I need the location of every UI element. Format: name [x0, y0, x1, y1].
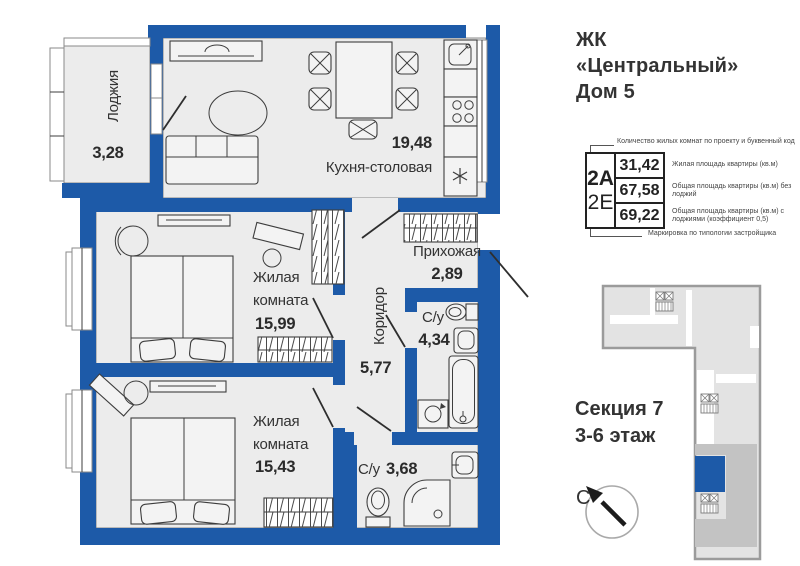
shower-tray: [404, 480, 450, 526]
hallway-area: 2,89: [431, 265, 462, 283]
total-area-label: Общая площадь квартиры (кв.м) без лоджий: [672, 178, 798, 204]
compass: С: [556, 472, 651, 556]
loggia-area: 3,28: [92, 144, 123, 162]
corridor-area: 5,77: [360, 359, 391, 377]
bedroom2-name-2: комната: [253, 436, 309, 453]
apartment-code-primary: 2А: [587, 167, 614, 191]
project-title: ЖК «Центральный» Дом 5: [576, 27, 739, 105]
north-arrow: [602, 502, 625, 525]
apartment-areas: 31,42 67,58 69,22: [614, 152, 665, 229]
apartment-floorplan: Лоджия 3,28 19,48 Кухня-столовая Жилая к…: [0, 0, 540, 566]
kitchen-name: Кухня-столовая: [326, 159, 432, 176]
hallway-name: Прихожая: [413, 243, 481, 260]
spec-labels: Жилая площадь квартиры (кв.м) Общая площ…: [672, 152, 798, 229]
legend-bottom-connector: [590, 229, 642, 237]
corridor-name: Коридор: [371, 287, 388, 345]
total-area-with-loggia-label: Общая площадь квартиры (кв.м) с лоджиями…: [672, 203, 798, 229]
washing-machine: [418, 400, 448, 428]
wardrobe: [312, 210, 344, 284]
project-title-line2: «Центральный»: [576, 53, 739, 79]
total-area-value: 67,58: [614, 177, 665, 204]
sofa: [166, 136, 258, 184]
north-label: С: [576, 487, 590, 509]
apartment-code-secondary: 2Е: [588, 191, 614, 215]
hallway-wardrobe: [404, 214, 477, 242]
living-area-value: 31,42: [614, 152, 665, 179]
bathroom1-area: 4,34: [418, 331, 450, 349]
bathroom2-area: 3,68: [386, 460, 417, 478]
loggia-name: Лоджия: [105, 70, 122, 122]
kitchen-units: [444, 40, 477, 196]
bathtub: [449, 356, 478, 428]
counter: [444, 69, 477, 97]
bathroom2-name: С/у: [358, 461, 381, 478]
legend-top-note: Количество жилых комнат по проекту и бук…: [617, 138, 795, 145]
floor-range: 3-6 этаж: [575, 423, 664, 450]
toilet: [367, 488, 389, 516]
tv-console: [170, 41, 262, 61]
toilet-base: [366, 517, 390, 527]
double-bed: [131, 418, 235, 525]
bedroom1-name-2: комната: [253, 292, 309, 309]
project-title-line1: ЖК: [576, 27, 739, 53]
bathroom1-name: С/у: [422, 309, 445, 326]
wardrobe: [258, 337, 332, 362]
double-bed: [131, 256, 233, 362]
bedroom1-window-sill: [66, 252, 72, 326]
legend-bottom-note: Маркировка по типологии застройщика: [648, 230, 776, 237]
toilet-tank: [466, 304, 478, 320]
balcony-window-frame: [151, 98, 162, 134]
minimap-highlighted-apartment: [695, 456, 725, 492]
floorplan-page: Лоджия 3,28 19,48 Кухня-столовая Жилая к…: [0, 0, 800, 566]
kitchen-area: 19,48: [392, 134, 432, 152]
bedroom2-window-sill: [66, 394, 72, 468]
apartment-codes: 2А 2Е: [585, 152, 616, 229]
loggia-glazing: [50, 48, 64, 181]
living-area-label: Жилая площадь квартиры (кв.м): [672, 152, 798, 178]
balcony-door-frame: [151, 64, 162, 98]
loggia-top-window: [64, 38, 150, 46]
stove: [444, 97, 477, 126]
section-number: Секция 7: [575, 396, 664, 423]
bedroom2-area: 15,43: [255, 458, 295, 476]
project-title-line3: Дом 5: [576, 79, 739, 105]
wardrobe: [264, 498, 333, 527]
dining-table: [336, 42, 392, 118]
section-info: Секция 7 3-6 этаж: [575, 396, 664, 450]
apartment-spec-table: 2А 2Е 31,42 67,58 69,22: [585, 152, 665, 229]
total-area-with-loggia-value: 69,22: [614, 202, 665, 229]
bedroom2-name-1: Жилая: [253, 413, 300, 430]
bedroom1-name-1: Жилая: [253, 269, 300, 286]
bedroom1-area: 15,99: [255, 315, 295, 333]
counter: [444, 126, 477, 157]
